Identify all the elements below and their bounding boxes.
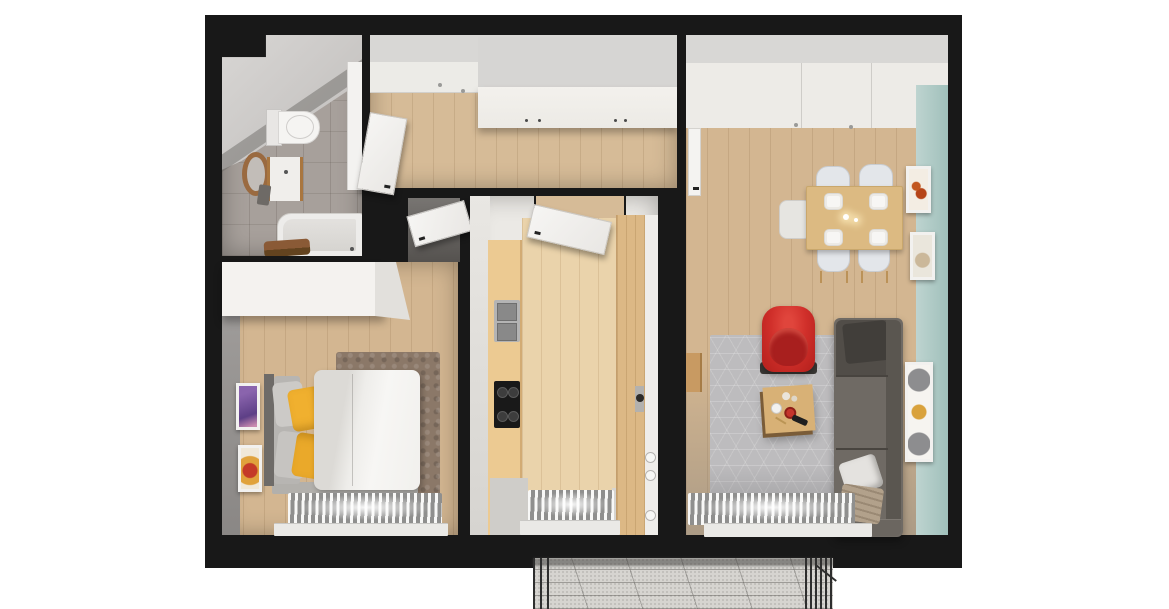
kitchen-sink — [494, 300, 520, 342]
burner — [508, 411, 519, 422]
living-top-wall — [686, 35, 948, 64]
floor-plan-render — [0, 0, 1169, 609]
console-table — [686, 353, 702, 392]
bath-towels — [263, 238, 310, 257]
jar — [791, 395, 797, 401]
wardrobe-handle — [614, 119, 617, 122]
wall-seam — [801, 63, 802, 128]
plate — [824, 229, 843, 246]
ceiling-spotlight — [438, 83, 442, 87]
burner — [508, 387, 519, 398]
picture-frame-orange — [238, 445, 262, 492]
toilet-seat — [286, 115, 314, 139]
chair-leg — [886, 271, 888, 283]
balcony-rail-shadow — [533, 558, 833, 566]
bathtub-faucet — [350, 247, 354, 251]
chair-leg — [846, 271, 848, 283]
picture-frame-xo — [906, 166, 931, 213]
kitchen-wall-face — [470, 196, 490, 535]
hallway-wall-face — [370, 62, 478, 93]
candle — [854, 218, 858, 222]
kitchen-floor — [522, 218, 616, 535]
ceiling-spotlight — [461, 89, 465, 93]
room-bathroom — [222, 35, 362, 256]
sofa-backrest — [886, 320, 901, 535]
hallway-wardrobe-top — [478, 37, 677, 87]
jar — [782, 392, 791, 401]
bed-duvet — [314, 370, 420, 490]
balcony-railing-left — [533, 558, 549, 609]
kitchen-windowsill — [520, 520, 620, 535]
plate — [869, 229, 888, 246]
ceiling-spotlight — [794, 123, 798, 127]
burner — [497, 387, 508, 398]
wardrobe-handle — [624, 119, 627, 122]
cushion-seam — [836, 375, 888, 377]
ceiling-spotlight — [849, 125, 853, 129]
sink-basin — [497, 303, 517, 321]
chair-leg — [861, 271, 863, 283]
bedroom-radiator — [288, 493, 442, 525]
door-knob — [645, 470, 656, 481]
tall-cabinet — [616, 215, 646, 535]
picture-frame-pale — [910, 232, 935, 280]
sink-basin — [497, 323, 517, 341]
living-radiator — [688, 493, 855, 525]
bedroom-wardrobe — [222, 262, 385, 316]
hallway-wardrobe — [478, 87, 677, 128]
wall-seam — [871, 63, 872, 128]
cabinet-knob — [636, 394, 644, 402]
door-knob — [645, 452, 656, 463]
coffee-table — [762, 384, 815, 433]
room-kitchen — [470, 196, 658, 535]
utensil — [775, 417, 786, 425]
teal-accent-wall — [916, 85, 948, 535]
burner — [497, 411, 508, 422]
living-wall-face — [686, 63, 948, 128]
living-open-door — [688, 128, 701, 196]
remote-control — [791, 414, 808, 426]
toilet — [278, 111, 320, 144]
cushion-seam — [836, 448, 888, 450]
room-living — [686, 35, 948, 535]
sink-vanity — [267, 157, 303, 201]
living-windowsill — [704, 523, 872, 537]
room-bedroom — [222, 262, 458, 535]
door-handle — [693, 187, 699, 190]
sofa-dark-throw — [842, 320, 890, 364]
wardrobe-handle — [525, 119, 528, 122]
hand-towel — [257, 184, 272, 205]
room-hallway — [370, 35, 677, 188]
door-handle — [534, 231, 541, 235]
faucet — [284, 170, 288, 174]
picture-frame-purple — [236, 383, 260, 430]
cooktop — [494, 381, 520, 428]
bedroom-windowsill — [274, 523, 448, 536]
bedroom-wardrobe-side — [375, 262, 410, 320]
candle — [843, 214, 849, 220]
red-armchair — [762, 306, 815, 372]
door-handle — [419, 236, 426, 241]
cup — [771, 403, 783, 415]
wardrobe-handle — [538, 119, 541, 122]
dining-table — [806, 186, 903, 250]
plate — [869, 193, 888, 210]
kitchen-wall-face — [645, 215, 658, 535]
plate — [824, 193, 843, 210]
balcony — [533, 558, 833, 609]
door-knob — [645, 510, 656, 521]
armchair-seat — [769, 328, 808, 366]
door-handle — [384, 185, 390, 189]
picture-frame-abstract — [905, 362, 933, 462]
chair-leg — [820, 271, 822, 283]
kitchen-radiator — [528, 490, 614, 522]
duvet-fold — [352, 374, 353, 486]
